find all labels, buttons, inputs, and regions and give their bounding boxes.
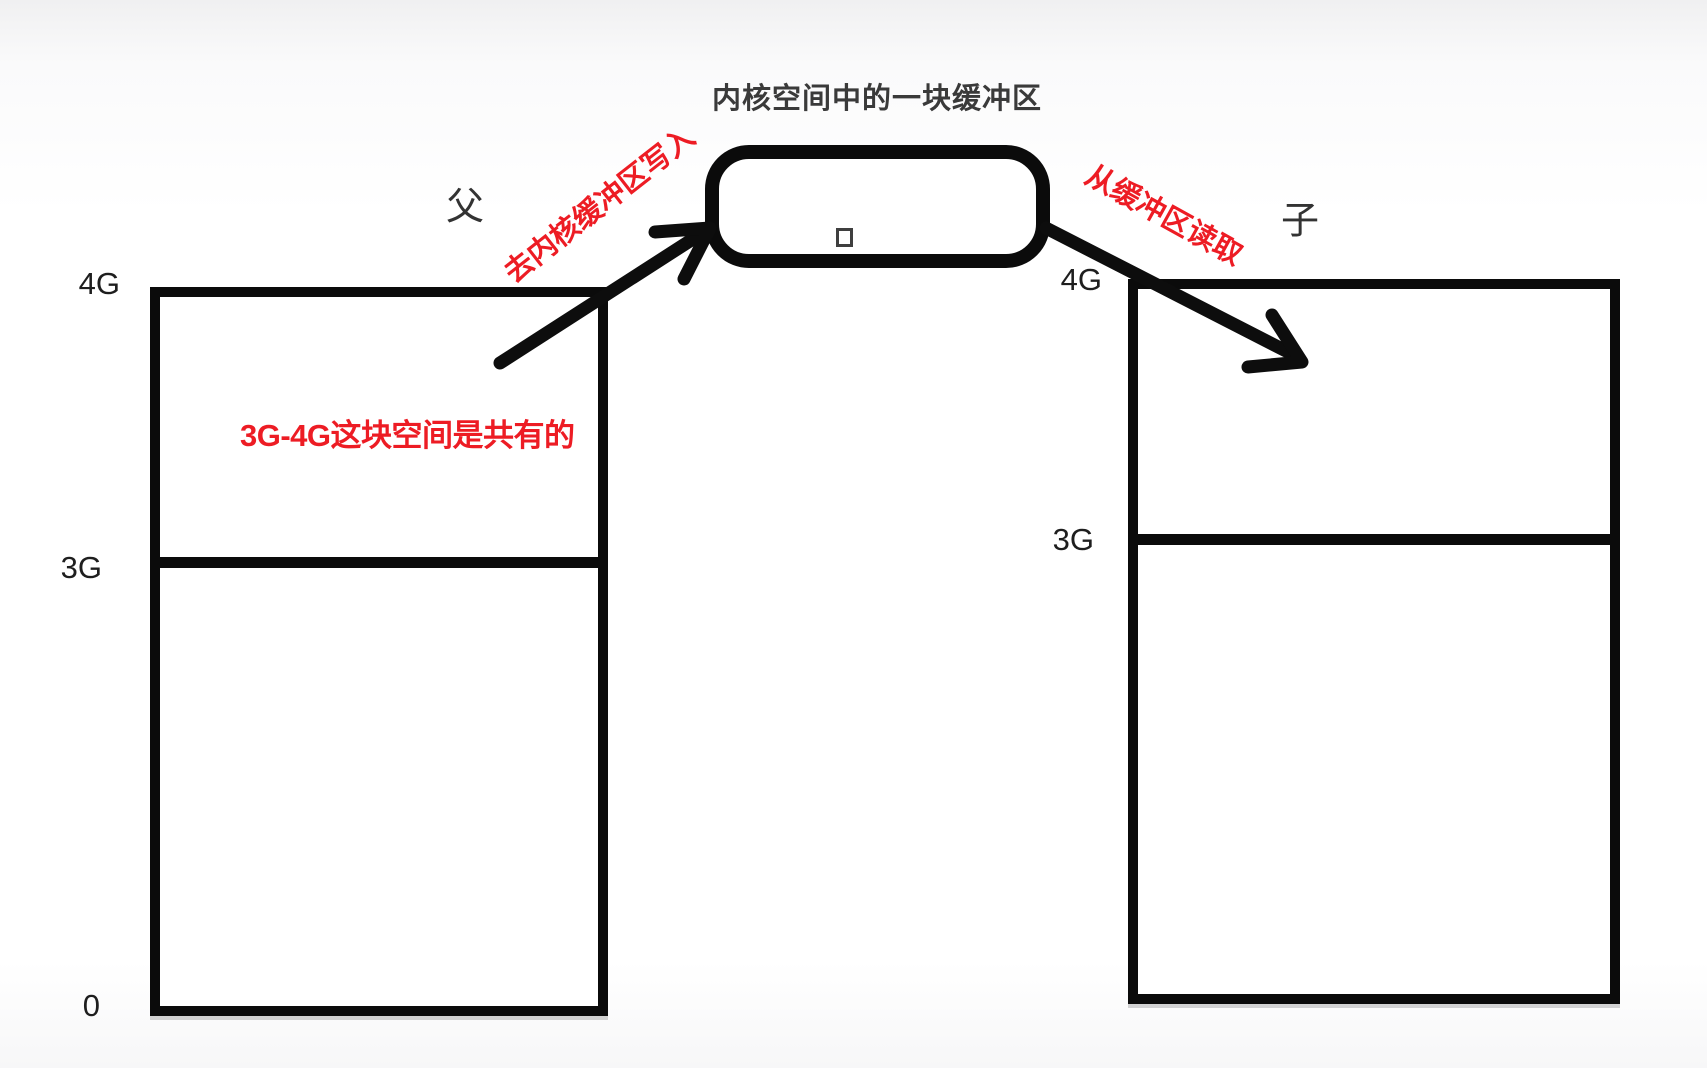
parent-label: 父 — [446, 176, 484, 231]
read-annotation: 从缓冲区读取 — [1079, 152, 1252, 273]
child-3g-divider — [1128, 534, 1620, 545]
shared-space-annotation: 3G-4G这块空间是共有的 — [240, 410, 575, 455]
parent-tick-4g: 4G — [38, 266, 120, 302]
parent-memory-box — [150, 287, 608, 1016]
kernel-buffer-box — [705, 145, 1050, 268]
write-annotation: 去内核缓冲区写入 — [494, 115, 703, 291]
kernel-buffer-title: 内核空间中的一块缓冲区 — [712, 75, 1042, 117]
child-tick-3g: 3G — [1020, 522, 1094, 558]
child-memory-box — [1128, 279, 1620, 1004]
child-tick-4g: 4G — [1028, 262, 1102, 298]
parent-3g-divider — [150, 557, 608, 568]
buffer-data-square-icon — [836, 228, 853, 247]
parent-tick-0: 0 — [40, 988, 100, 1024]
diagram-canvas: 内核空间中的一块缓冲区 4G 3G 0 4G 3G 父 子 去内核缓冲区写入 从… — [0, 0, 1707, 1068]
child-label: 子 — [1281, 190, 1319, 245]
parent-tick-3g: 3G — [30, 550, 102, 586]
